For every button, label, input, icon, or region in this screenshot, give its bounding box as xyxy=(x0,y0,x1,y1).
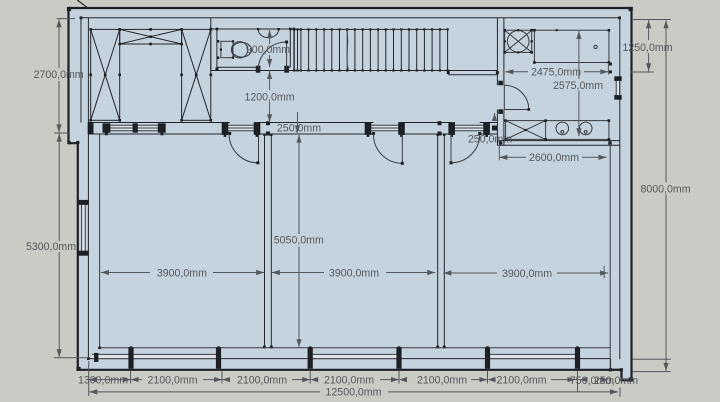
svg-text:2475,0mm: 2475,0mm xyxy=(531,67,581,79)
svg-text:2100,0mm: 2100,0mm xyxy=(237,374,287,386)
svg-text:12500,0mm: 12500,0mm xyxy=(326,387,382,399)
svg-text:2100,0mm: 2100,0mm xyxy=(417,374,467,386)
svg-text:3900,0mm: 3900,0mm xyxy=(329,268,379,280)
svg-text:5300,0mm: 5300,0mm xyxy=(26,241,76,253)
svg-text:250,0mm: 250,0mm xyxy=(468,134,512,146)
svg-text:1250,0mm: 1250,0mm xyxy=(622,42,672,54)
svg-text:900,0mm: 900,0mm xyxy=(246,44,290,56)
svg-text:1200,0mm: 1200,0mm xyxy=(244,91,294,103)
svg-text:250,0mm: 250,0mm xyxy=(594,375,638,387)
svg-text:2100,0mm: 2100,0mm xyxy=(496,374,546,386)
svg-text:2100,0mm: 2100,0mm xyxy=(324,374,374,386)
svg-text:2100,0mm: 2100,0mm xyxy=(147,374,197,386)
svg-text:3900,0mm: 3900,0mm xyxy=(157,268,207,280)
svg-text:5050,0mm: 5050,0mm xyxy=(274,235,324,247)
svg-text:250,0mm: 250,0mm xyxy=(277,123,321,135)
svg-text:2600,0mm: 2600,0mm xyxy=(529,152,579,164)
svg-text:2700,0mm: 2700,0mm xyxy=(34,69,84,81)
svg-text:1300,0mm: 1300,0mm xyxy=(78,374,128,386)
svg-text:8000,0mm: 8000,0mm xyxy=(640,183,690,195)
svg-text:2575,0mm: 2575,0mm xyxy=(553,80,603,92)
svg-text:3900,0mm: 3900,0mm xyxy=(502,268,552,280)
